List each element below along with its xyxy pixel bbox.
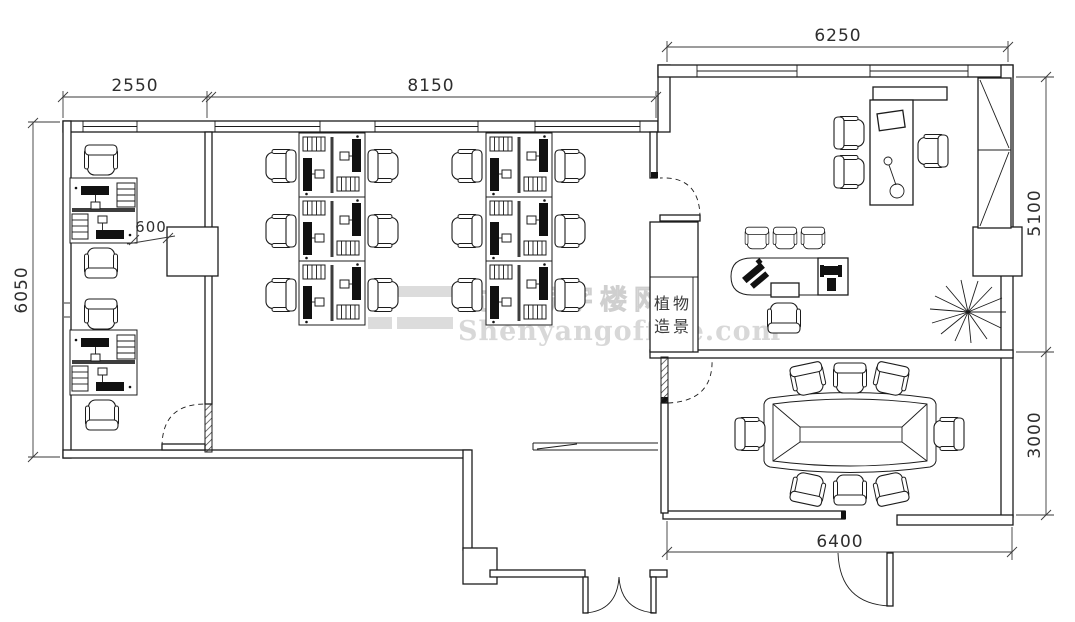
dim-column-offset: 600 [135,218,167,236]
left-workstations [70,145,137,430]
column-left [167,227,218,276]
plant-room-label-2: 造景 [654,317,692,336]
workstation-cluster-b [452,133,585,325]
plant-room: 植物 造景 [650,222,698,352]
dim-top-right: 6250 [814,26,861,46]
column-right [973,227,1022,276]
door-conference-bottom [838,553,893,606]
workstation-cluster-a [266,133,398,325]
plant [930,280,1006,343]
dim-bottom-right: 6400 [816,532,863,552]
office-floor-plan: 沈阳写字楼网 Shenyangoffice.com [0,0,1075,622]
door-main-entry [583,577,656,613]
door-manager-office [660,178,700,221]
door-conference-side [661,357,712,403]
cabinet [978,78,1011,228]
manager-office [731,78,1011,343]
floor-plan-canvas: 沈阳写字楼网 Shenyangoffice.com [0,0,1075,622]
dim-top-center: 8150 [407,76,454,96]
conference-room [735,361,964,507]
dim-right-upper: 5100 [1025,189,1045,236]
dim-right-lower: 3000 [1025,411,1045,458]
keyboard [739,258,772,290]
plant-room-label-1: 植物 [654,294,692,313]
door-left-room [162,404,205,450]
dim-top-left: 2550 [111,76,158,96]
dim-left: 6050 [12,266,32,313]
lobby-counter [533,443,658,450]
